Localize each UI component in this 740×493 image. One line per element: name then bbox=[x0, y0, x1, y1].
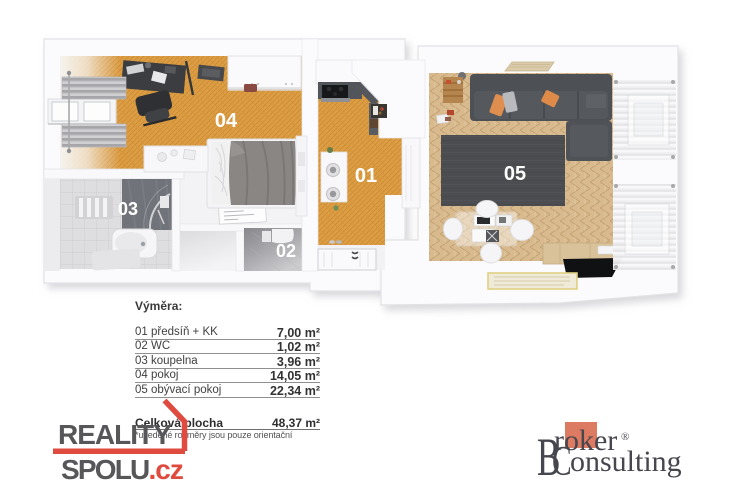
svg-text:®: ® bbox=[621, 431, 629, 443]
svg-text:C: C bbox=[552, 438, 572, 484]
svg-text:onsulting: onsulting bbox=[570, 445, 682, 478]
